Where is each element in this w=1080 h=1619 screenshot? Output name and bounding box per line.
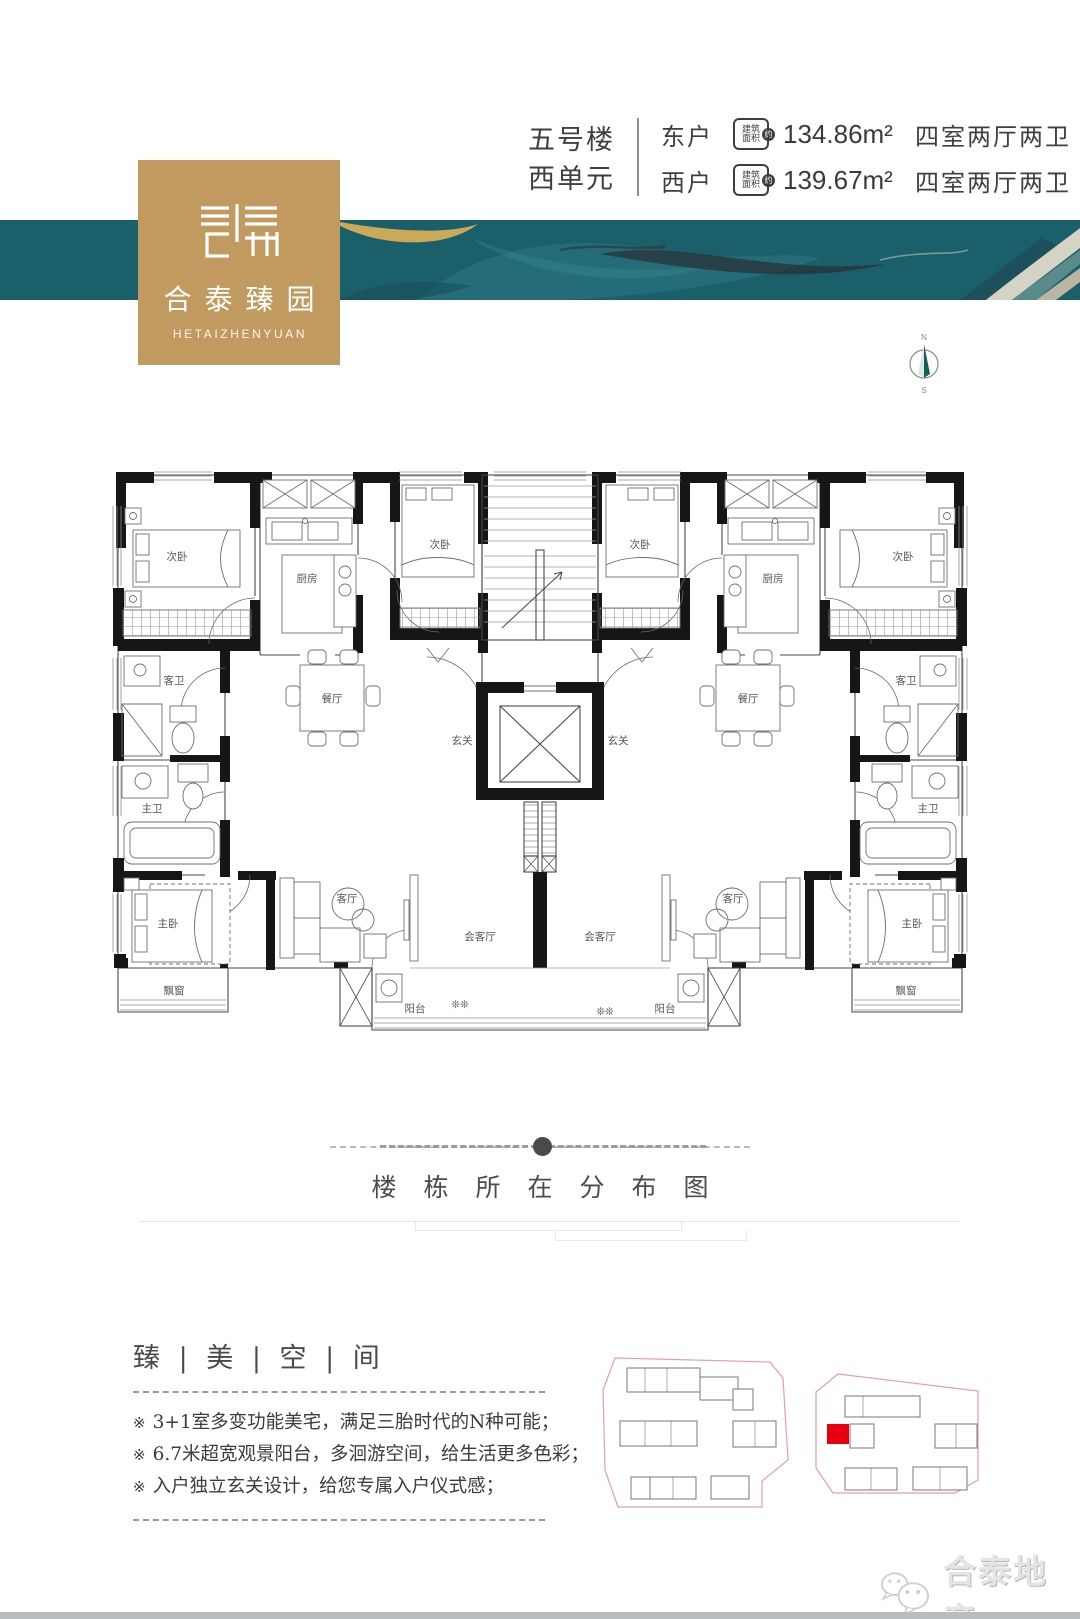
- building-column: 五号楼 西单元: [528, 116, 637, 198]
- selling-point-item: ※3+1室多变功能美宅，满足三胎时代的N种可能；: [133, 1407, 545, 1439]
- room-label: 主卫: [142, 803, 163, 815]
- room-label: 客厅: [723, 892, 744, 905]
- room-label: 玄关: [608, 734, 629, 747]
- room-label: 阳台: [655, 1002, 676, 1015]
- plant-icon: ❊❊: [451, 999, 469, 1011]
- room-label: 飘窗: [896, 984, 917, 997]
- dashed-divider-top: [133, 1391, 545, 1393]
- distribution-dot: [533, 1137, 552, 1156]
- room-label: 玄关: [452, 734, 473, 747]
- room-label: 次卧: [893, 550, 914, 563]
- west-household-label: 西户: [661, 163, 723, 198]
- plant-icon: ❊❊: [596, 1006, 614, 1018]
- selling-points-heading: 臻 | 美 | 空 | 间: [133, 1336, 545, 1375]
- room-label: 客厅: [337, 892, 358, 905]
- staircase: [482, 472, 598, 640]
- floor-area-badge-icon: 建筑 面积 约: [733, 118, 769, 150]
- selling-point-item: ※6.7米超宽观景阳台，多洄游空间，给生活更多色彩；: [133, 1439, 545, 1471]
- room-label: 主卧: [158, 917, 179, 930]
- building-name: 五号楼: [528, 118, 615, 157]
- room-label: 主卫: [918, 803, 939, 815]
- room-label: 会客厅: [584, 930, 616, 943]
- flyer-page: 五号楼 西单元 东户 建筑 面积 约 134.86m² 四室两厅两卫 西户 建筑…: [0, 0, 1080, 1619]
- compass-south-label: S: [921, 386, 926, 395]
- selling-point-item: ※入户独立玄关设计，给您专属入户仪式感；: [133, 1471, 545, 1503]
- room-label: 餐厅: [738, 692, 759, 705]
- logo-seal-icon: [199, 204, 279, 266]
- room-label: 次卧: [630, 538, 651, 551]
- current-building-highlight: [827, 1424, 849, 1444]
- east-area-value: 134.86m²: [783, 119, 915, 150]
- approx-circle: 约: [762, 128, 775, 141]
- selling-points: 臻 | 美 | 空 | 间 ※3+1室多变功能美宅，满足三胎时代的N种可能； ※…: [133, 1336, 545, 1521]
- room-label: 飘窗: [164, 984, 185, 997]
- developer-name: 合泰地产: [943, 1545, 1080, 1619]
- east-layout: 四室两厅两卫: [915, 117, 1071, 152]
- elevator-shaft: [476, 682, 604, 800]
- spec-row-west: 西户 建筑 面积 约 139.67m² 四室两厅两卫: [661, 163, 1071, 197]
- buildings-left-parcel: [620, 1368, 776, 1499]
- site-plan: [595, 1290, 990, 1520]
- dashed-divider-bottom: [133, 1519, 545, 1521]
- logo-title: 合泰臻园: [150, 278, 327, 318]
- bottom-gray-bar: [0, 1612, 1080, 1619]
- room-label: 客卫: [164, 674, 185, 687]
- spec-rows: 东户 建筑 面积 约 134.86m² 四室两厅两卫 西户 建筑 面积 约 13…: [639, 116, 1071, 198]
- bullet-icon: ※: [133, 1478, 146, 1496]
- room-label: 次卧: [167, 550, 188, 563]
- floor-plan: 次卧 厨房 次卧 客卫 主卫 餐厅 玄关 主卧 客厅 会客厅 飘窗 阳台 次卧 …: [110, 460, 970, 1040]
- wechat-icon: [878, 1570, 935, 1616]
- compass-north-label: N: [921, 333, 927, 342]
- selling-points-list: ※3+1室多变功能美宅，满足三胎时代的N种可能； ※6.7米超宽观景阳台，多洄游…: [133, 1407, 545, 1503]
- brand-logo-card: 合泰臻园 HETAIZHENYUAN: [138, 160, 340, 365]
- balcony: [372, 968, 708, 1030]
- duct-box: [340, 968, 372, 1026]
- stage-box: [555, 1230, 747, 1241]
- room-label: 客卫: [896, 674, 917, 687]
- east-household-label: 东户: [661, 117, 723, 152]
- room-label: 会客厅: [464, 930, 496, 943]
- room-label: 阳台: [405, 1002, 426, 1015]
- unit-name: 西单元: [528, 157, 615, 196]
- unit-spec-header: 五号楼 西单元 东户 建筑 面积 约 134.86m² 四室两厅两卫 西户 建筑…: [528, 116, 1071, 198]
- compass-needle-dark: [924, 344, 930, 378]
- spec-row-east: 东户 建筑 面积 约 134.86m² 四室两厅两卫: [661, 117, 1071, 151]
- service-shafts: [524, 802, 556, 872]
- room-label: 次卧: [430, 538, 451, 551]
- bullet-icon: ※: [133, 1446, 146, 1464]
- compass: N S: [898, 330, 950, 401]
- developer-watermark: 合泰地产: [878, 1545, 1080, 1619]
- logo-subtitle: HETAIZHENYUAN: [171, 327, 307, 341]
- bullet-icon: ※: [133, 1414, 146, 1432]
- approx-circle: 约: [762, 174, 775, 187]
- buildings-right-parcel: [845, 1396, 977, 1490]
- room-label: 餐厅: [322, 692, 343, 705]
- room-label: 主卧: [902, 917, 923, 930]
- compass-needle-light: [918, 344, 924, 378]
- distribution-title: 楼栋所在分布图: [0, 1168, 1080, 1204]
- room-label: 厨房: [763, 572, 784, 585]
- room-label: 厨房: [297, 572, 318, 585]
- west-layout: 四室两厅两卫: [915, 163, 1071, 198]
- floor-area-badge-icon: 建筑 面积 约: [733, 164, 769, 196]
- west-area-value: 139.67m²: [783, 165, 915, 196]
- party-wall: [533, 872, 547, 968]
